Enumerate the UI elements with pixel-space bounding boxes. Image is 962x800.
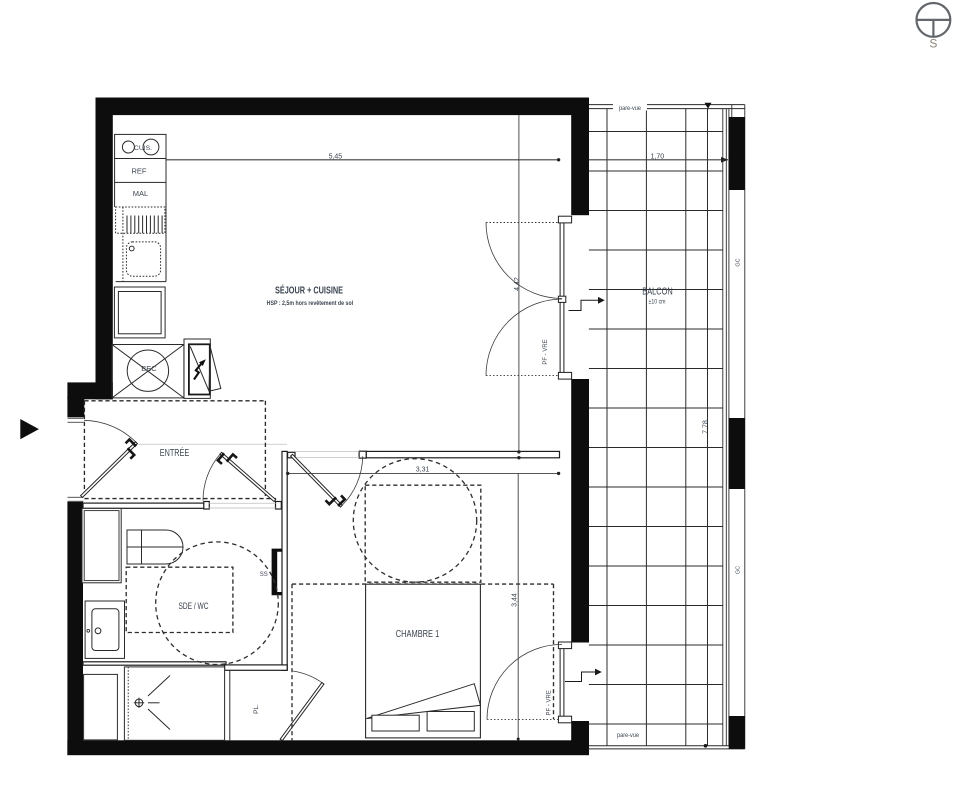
svg-text:4,42: 4,42 (514, 277, 521, 291)
svg-text:±10 cm: ±10 cm (649, 298, 666, 305)
svg-text:3,31: 3,31 (416, 466, 430, 473)
svg-text:CHAMBRE 1: CHAMBRE 1 (396, 629, 440, 640)
svg-text:ENTRÉE: ENTRÉE (160, 446, 190, 459)
svg-text:pare-vue: pare-vue (617, 733, 640, 739)
svg-text:HSP : 2,5m hors revêtement de: HSP : 2,5m hors revêtement de sol (267, 300, 354, 307)
svg-text:3,44: 3,44 (512, 593, 519, 607)
svg-text:MAL: MAL (133, 189, 148, 198)
svg-text:5,45: 5,45 (329, 154, 343, 161)
svg-text:GC: GC (735, 566, 741, 574)
svg-text:S: S (929, 37, 937, 51)
svg-text:SS: SS (260, 572, 268, 578)
svg-text:1,70: 1,70 (650, 153, 664, 160)
svg-text:BEC: BEC (141, 364, 157, 373)
svg-text:SDE / WC: SDE / WC (179, 601, 209, 611)
svg-text:PL.: PL. (253, 704, 260, 714)
svg-text:PF - VRE: PF - VRE (547, 690, 553, 715)
svg-text:PF - VRE: PF - VRE (543, 339, 549, 364)
svg-text:pare-vue: pare-vue (619, 106, 642, 112)
svg-text:SÉJOUR + CUISINE: SÉJOUR + CUISINE (275, 285, 343, 297)
svg-text:CUIS.: CUIS. (134, 145, 152, 152)
svg-text:GC: GC (735, 258, 741, 266)
svg-text:7,78: 7,78 (702, 420, 709, 434)
svg-text:REF: REF (132, 167, 147, 176)
svg-text:BALCON: BALCON (642, 287, 673, 298)
